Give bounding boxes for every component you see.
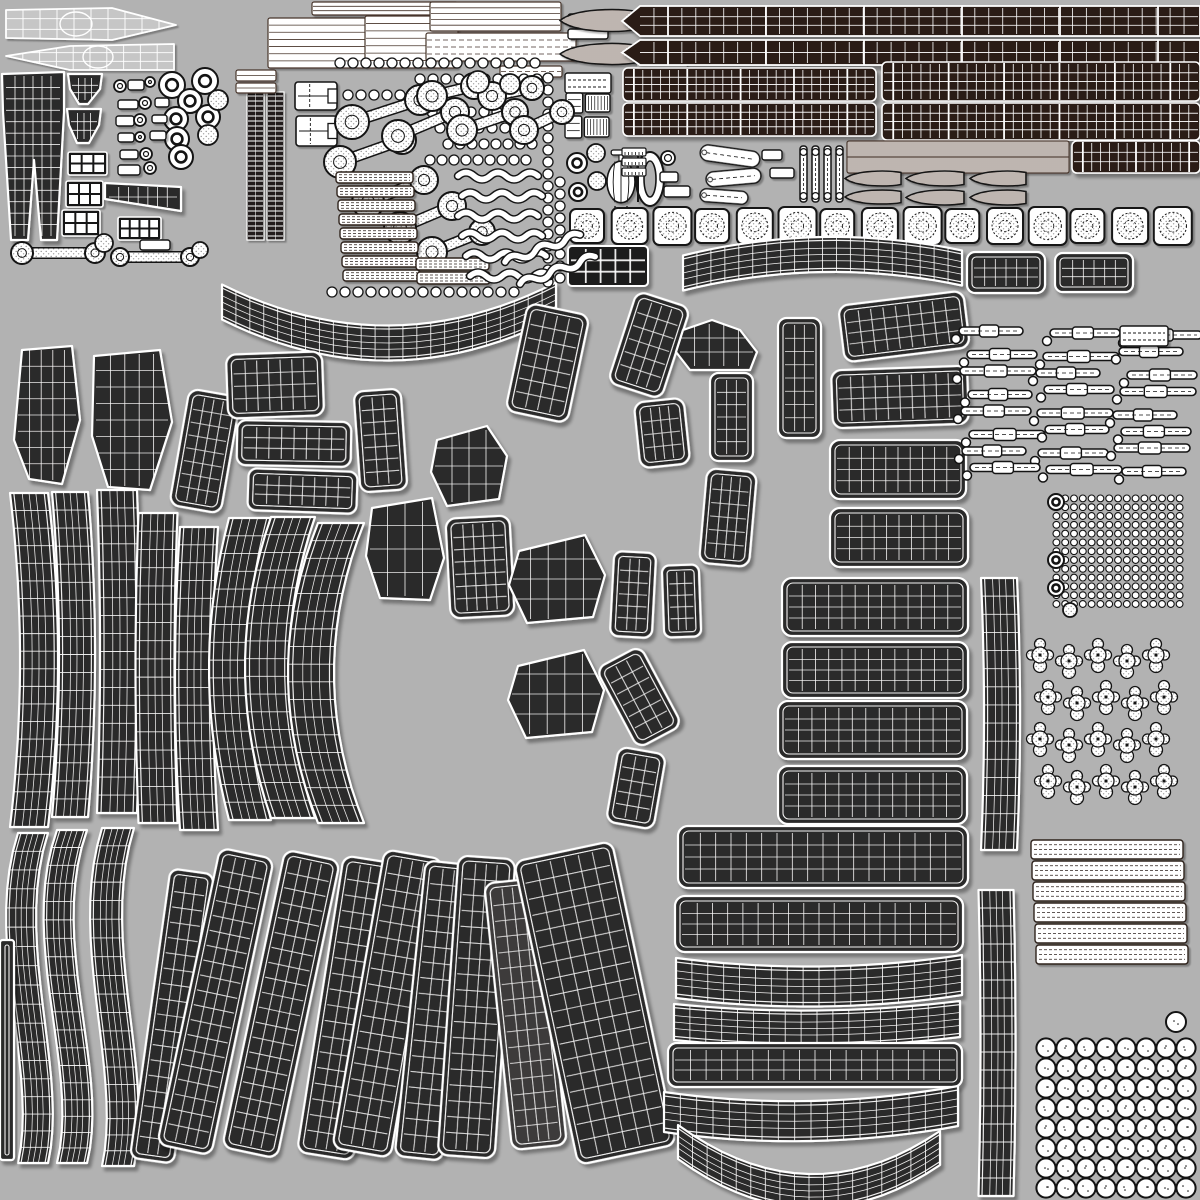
- hull-plank-vertical: [981, 578, 1020, 850]
- fitting-plate: [664, 186, 690, 197]
- gunwale-strip: [622, 6, 1200, 36]
- bead-chain: [425, 155, 531, 165]
- ring-washer: [567, 153, 587, 173]
- hull-panel: [237, 420, 352, 467]
- eyelet: [140, 148, 152, 160]
- knob: [1063, 603, 1077, 617]
- fitting-plate: [116, 116, 134, 126]
- fitting-plate: [155, 98, 169, 107]
- hull-panel: [778, 318, 821, 438]
- deck-plank: [426, 33, 576, 61]
- uv-atlas-canvas: [0, 0, 1200, 1200]
- window-grid-plate: [118, 217, 161, 240]
- knob: [95, 234, 113, 252]
- knob: [198, 125, 218, 145]
- hull-panel: [445, 515, 514, 618]
- fitting-plate: [770, 168, 794, 178]
- knob: [192, 242, 208, 258]
- eyelet: [145, 77, 155, 87]
- eyelet: [139, 97, 151, 109]
- fitting-plate: [128, 80, 144, 90]
- fitting-plate: [140, 240, 170, 250]
- hull-panel: [967, 252, 1045, 293]
- ring-washer: [169, 145, 193, 169]
- fitting-plate: [118, 165, 140, 175]
- bracket-plate: [295, 82, 337, 110]
- hull-panel: [782, 642, 968, 698]
- plank-block: [623, 68, 876, 101]
- knob: [588, 172, 606, 190]
- fitting-plate: [118, 133, 134, 142]
- bracket-fitting: [700, 188, 749, 204]
- ring-washer: [1048, 494, 1064, 510]
- deck-plank: [236, 70, 276, 81]
- hull-panel: [778, 701, 967, 759]
- hull-panel: [678, 826, 968, 888]
- fitting-plate: [660, 172, 678, 182]
- woven-plank: [847, 141, 1069, 173]
- window-grid-plate: [62, 210, 100, 236]
- ring-washer: [1048, 552, 1064, 568]
- knob: [208, 90, 228, 110]
- fitting-plate: [565, 73, 611, 93]
- hull-panel: [247, 468, 357, 514]
- ladder-strip: [267, 92, 284, 240]
- hull-panel-poly: [431, 426, 507, 506]
- hull-panel: [668, 1043, 962, 1087]
- knob: [467, 71, 489, 93]
- hull-panel: [778, 766, 967, 824]
- button: [1166, 1012, 1186, 1032]
- fitting-plate: [1120, 326, 1168, 346]
- fitting-plate: [150, 131, 166, 140]
- bead-chain: [327, 287, 519, 297]
- hull-panel: [0, 940, 14, 1160]
- hull-panel: [662, 564, 701, 637]
- hull-panel: [782, 578, 968, 636]
- uv-wireframe-atlas: [0, 0, 1200, 1200]
- fitting-plate: [120, 150, 138, 159]
- hull-panel: [675, 896, 963, 952]
- fitting-plate: [152, 115, 167, 123]
- eyelet: [661, 151, 675, 165]
- comb-fitting: [622, 158, 646, 166]
- hull-plank-vertical: [52, 492, 95, 817]
- window-grid-plate: [66, 181, 103, 207]
- hull-panel: [830, 440, 966, 499]
- hull-panel: [699, 468, 757, 567]
- bracket-plate: [296, 116, 337, 146]
- hull-panel: [710, 373, 753, 461]
- hull-panel: [634, 398, 691, 469]
- hull-panel: [830, 508, 968, 567]
- hull-panel: [226, 351, 324, 418]
- fitting-plate: [118, 100, 138, 109]
- hull-panel-poly: [366, 498, 444, 600]
- ring-washer: [1048, 580, 1064, 596]
- eyelet: [144, 162, 156, 174]
- plank-block: [882, 103, 1200, 140]
- fitting-plate: [762, 150, 782, 160]
- hull-plank-vertical: [97, 490, 140, 813]
- deck-plank: [430, 2, 561, 31]
- hull-plank-vertical: [136, 513, 178, 823]
- eyelet: [135, 132, 145, 142]
- plank-block: [882, 62, 1200, 101]
- eyelet: [114, 80, 126, 92]
- deck-plank: [236, 83, 276, 93]
- knob: [500, 74, 520, 94]
- knob: [587, 144, 605, 162]
- eyelet: [134, 114, 146, 126]
- window-grid-plate: [68, 152, 107, 175]
- comb-fitting: [622, 148, 646, 156]
- comb-fitting: [622, 168, 646, 176]
- hull-plank-vertical: [979, 890, 1016, 1196]
- hull-panel: [1055, 253, 1133, 292]
- hull-panel: [831, 366, 969, 429]
- hull-panel: [610, 551, 656, 638]
- ring-washer: [569, 183, 587, 201]
- plank-block: [623, 103, 876, 136]
- plank-block: [1072, 141, 1200, 173]
- hull-panel: [354, 388, 408, 492]
- ladder-strip: [247, 92, 264, 240]
